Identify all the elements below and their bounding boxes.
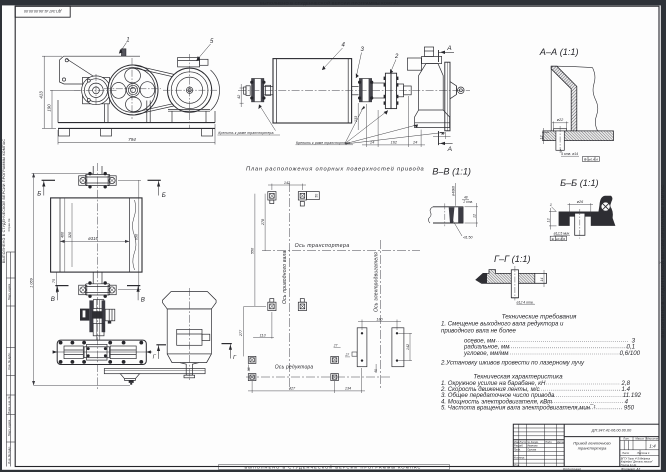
svg-text:Масса: Масса <box>635 437 644 441</box>
svg-text:113: 113 <box>260 333 267 337</box>
svg-text:Копировал: Копировал <box>563 467 581 471</box>
svg-text:ø0,4: ø0,4 <box>588 157 594 161</box>
svg-text:№ докум.: № докум. <box>527 440 539 444</box>
svg-text:1: 1 <box>550 202 552 207</box>
svg-text:27: 27 <box>333 344 338 348</box>
svg-text:413: 413 <box>39 91 44 99</box>
svg-text:2: 2 <box>394 54 399 60</box>
svg-text:ø12,5 мин: ø12,5 мин <box>554 231 570 235</box>
svg-text:Подп.: Подп. <box>545 440 552 444</box>
svg-text:427: 427 <box>289 387 296 391</box>
svg-text:Орлова: Орлова <box>527 448 537 452</box>
svg-text:Листов 1: Листов 1 <box>636 451 650 455</box>
svg-text:277: 277 <box>239 329 243 337</box>
svg-text:24: 24 <box>369 141 374 145</box>
svg-text:Подп. и дата: Подп. и дата <box>7 419 11 436</box>
svg-text:Ось транспортера: Ось транспортера <box>295 243 350 249</box>
svg-text:950: 950 <box>624 405 635 412</box>
svg-text:ДП.347.41-06.00.00.00: ДП.347.41-06.00.00.00 <box>591 428 632 432</box>
svg-text:Крепить к раме транспортера.: Крепить к раме транспортера. <box>218 131 274 135</box>
svg-text:Группа 41-41: Группа 41-41 <box>621 463 637 467</box>
svg-text:1 069: 1 069 <box>29 277 33 287</box>
svg-text:Иванова: Иванова <box>527 444 538 448</box>
svg-text:ø22: ø22 <box>557 118 564 122</box>
svg-text:ø26: ø26 <box>577 200 584 204</box>
svg-text:190: 190 <box>46 104 51 112</box>
svg-text:Г–Г (1:1): Г–Г (1:1) <box>494 254 531 264</box>
svg-text:ø12 4 отв.: ø12 4 отв. <box>517 300 534 304</box>
svg-text:4 отв. ø14: 4 отв. ø14 <box>561 152 578 156</box>
svg-text:Подп. и дата: Подп. и дата <box>7 283 11 300</box>
svg-text:50: 50 <box>315 194 319 198</box>
svg-text:⊲1:50: ⊲1:50 <box>463 235 473 239</box>
svg-text:А: А <box>446 45 452 52</box>
svg-text:Масштаб: Масштаб <box>646 437 659 441</box>
svg-text:угловое, мм/мм: угловое, мм/мм <box>463 350 509 357</box>
svg-text:Крепить к раме транспортера: Крепить к раме транспортера <box>296 141 350 145</box>
svg-text:Инв. № дубл.: Инв. № дубл. <box>7 352 11 370</box>
svg-text:Б: Б <box>563 237 565 241</box>
svg-text:транспортера: транспортера <box>578 446 607 451</box>
svg-text:162: 162 <box>391 141 398 145</box>
svg-text:А: А <box>447 146 453 153</box>
svg-text:Взам. инв. №: Взам. инв. № <box>7 396 11 413</box>
svg-text:Б–Б (1:1): Б–Б (1:1) <box>560 178 599 188</box>
svg-text:400: 400 <box>61 231 65 238</box>
svg-text:Б: Б <box>162 192 166 199</box>
svg-text:ДП.347.41-06.00.00.00: ДП.347.41-06.00.00.00 <box>24 9 62 13</box>
svg-text:А–А (1:1): А–А (1:1) <box>539 47 579 57</box>
svg-text:180: 180 <box>376 317 383 321</box>
svg-text:2.Установку шкивов провести: 2.Установку шкивов провести по лазерному… <box>440 360 585 367</box>
svg-text:12: 12 <box>540 136 544 140</box>
svg-text:0,6/100: 0,6/100 <box>620 350 641 357</box>
svg-text:133: 133 <box>354 115 358 122</box>
svg-text:320: 320 <box>68 231 72 238</box>
svg-text:1:4: 1:4 <box>649 443 656 448</box>
svg-text:Н.контр.: Н.контр. <box>514 455 525 459</box>
svg-text:В: В <box>51 296 55 303</box>
svg-text:ВЫПОЛНЕНО В СТУДЕНЧЕСКОЙ ВЕРСИ: ВЫПОЛНЕНО В СТУДЕНЧЕСКОЙ ВЕРСИИ ПРОГРАММ… <box>260 1 400 6</box>
svg-text:24: 24 <box>412 141 417 145</box>
svg-text:Справ. №: Справ. № <box>7 219 11 232</box>
svg-text:Изм.Лист: Изм.Лист <box>514 440 527 444</box>
svg-text:приводного вала не более: приводного вала не более <box>441 328 517 335</box>
svg-text:ВЫПОЛНЕНО В СТУДЕНЧЕСКОЙ ВЕРСИ: ВЫПОЛНЕНО В СТУДЕНЧЕСКОЙ ВЕРСИИ ПРОГРАММ… <box>245 465 422 470</box>
svg-text:ø315: ø315 <box>88 236 98 241</box>
svg-text:40: 40 <box>374 369 378 373</box>
svg-text:27: 27 <box>345 353 350 357</box>
svg-text:650: 650 <box>135 233 139 240</box>
svg-text:134: 134 <box>345 387 351 391</box>
svg-text:ВЫПОЛНЕНО В СТУДЕНЧЕСКОЙ ВЕРСИ: ВЫПОЛНЕНО В СТУДЕНЧЕСКОЙ ВЕРСИИ ПРОГРАММ… <box>2 139 6 263</box>
svg-text:2 отв.: 2 отв. <box>462 200 473 204</box>
svg-text:75: 75 <box>52 279 56 283</box>
svg-text:5. Частота вращения вала э: 5. Частота вращения вала электродвигател… <box>441 405 596 412</box>
svg-text:550: 550 <box>251 247 255 254</box>
svg-text:⊕: ⊕ <box>551 237 554 241</box>
svg-text:12: 12 <box>472 214 476 218</box>
svg-text:1. Смещение выходного вала: 1. Смещение выходного вала редуктора и <box>441 320 564 327</box>
svg-text:В: В <box>141 297 145 304</box>
svg-text:ø0,4: ø0,4 <box>556 237 562 241</box>
svg-text:ВЫПОЛНЕНО В СТУДЕНЧЕСКОЙ ВЕРСИ: ВЫПОЛНЕНО В СТУДЕНЧЕСКОЙ ВЕРСИИ ПРОГРАММ… <box>660 184 665 337</box>
svg-text:Технические требования: Технические требования <box>502 312 577 320</box>
svg-text:13: 13 <box>547 219 551 223</box>
svg-text:Дата: Дата <box>556 440 564 444</box>
svg-text:А: А <box>595 157 598 161</box>
svg-text:Ось электродвигателя: Ось электродвигателя <box>373 252 379 312</box>
svg-text:Пров.: Пров. <box>514 448 521 452</box>
svg-text:Ось приводного вала: Ось приводного вала <box>282 250 288 304</box>
svg-text:Формат А1: Формат А1 <box>621 467 641 471</box>
svg-text:142: 142 <box>406 343 410 350</box>
svg-text:Б: Б <box>37 190 41 197</box>
svg-text:86: 86 <box>247 367 251 371</box>
svg-text:В–В (1:1): В–В (1:1) <box>432 166 471 176</box>
svg-text:ø40k6: ø40k6 <box>451 186 455 196</box>
svg-text:Ось редуктора: Ось редуктора <box>275 364 314 370</box>
svg-text:14: 14 <box>540 278 544 282</box>
svg-text:Лит.: Лит. <box>622 437 630 441</box>
svg-text:Лист: Лист <box>621 451 630 455</box>
svg-text:278: 278 <box>261 218 265 226</box>
svg-text:794: 794 <box>128 137 136 142</box>
svg-text:План расположения опорных п: План расположения опорных поверхностей п… <box>246 166 425 173</box>
svg-text:Разраб.: Разраб. <box>514 444 524 448</box>
svg-text:Утв.: Утв. <box>514 463 520 467</box>
svg-text:142: 142 <box>284 181 291 185</box>
svg-text:Инв. № подл.: Инв. № подл. <box>7 446 11 464</box>
svg-text:⊕: ⊕ <box>584 158 587 162</box>
svg-text:1: 1 <box>126 38 129 44</box>
